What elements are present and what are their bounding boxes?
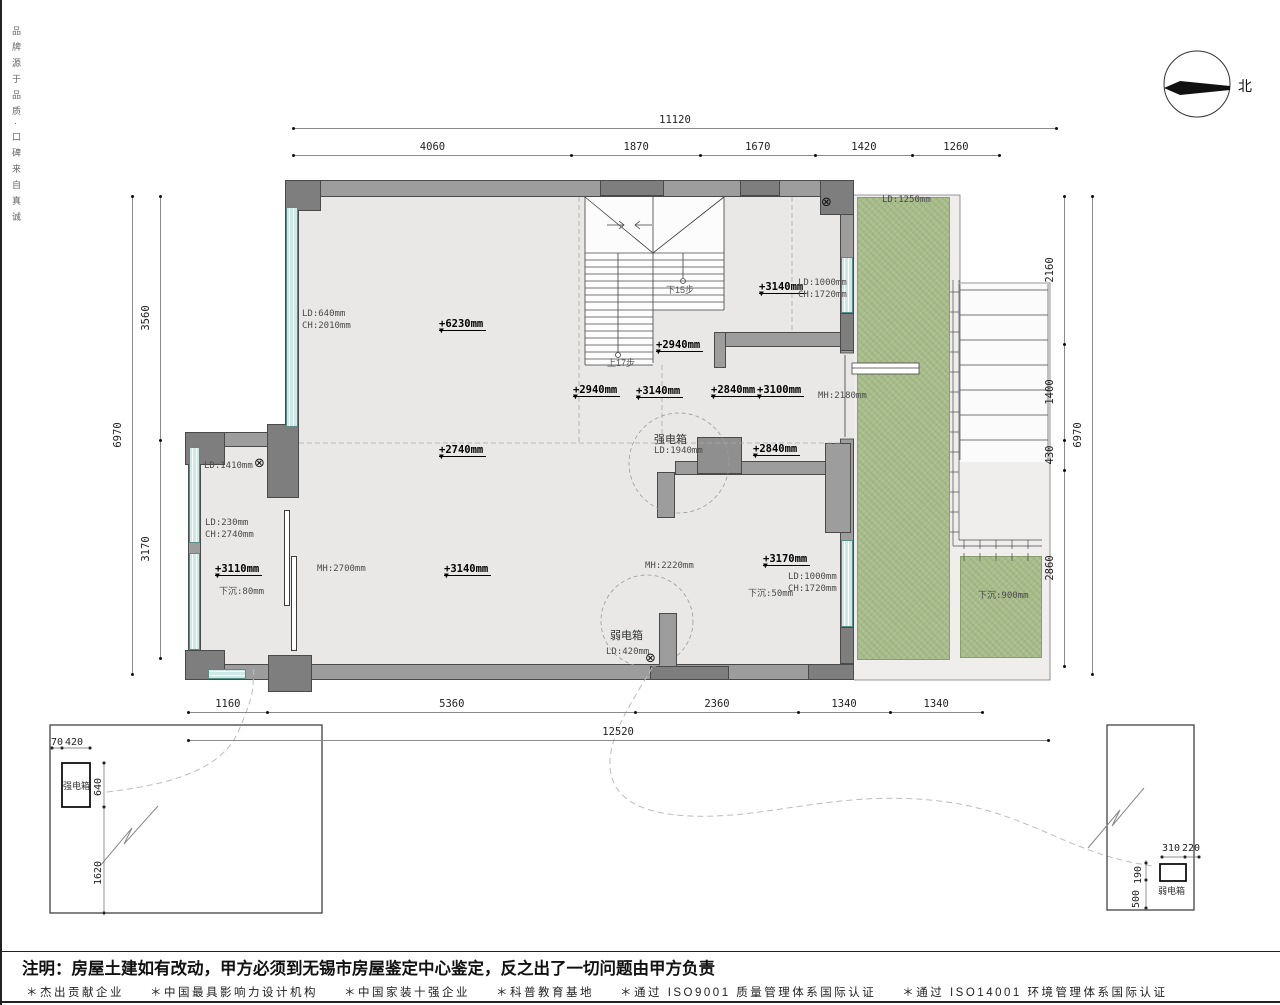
label-info: MH:2700mm [317, 564, 366, 574]
dim-dot [292, 127, 295, 130]
label-mark: ⊗ [645, 652, 656, 665]
dim-dot [131, 195, 134, 198]
dim-label: 1260 [943, 141, 968, 153]
dim-label: 1340 [923, 698, 948, 710]
label-info: 下沉:50mm [748, 586, 793, 599]
label-elev: +3170mm▼ [763, 553, 810, 566]
dim-line [1064, 196, 1065, 667]
label-info: LD:1000mm [788, 572, 837, 582]
label-dimtx: 70 [51, 737, 63, 748]
dim-label: 1670 [745, 141, 770, 153]
label-info: LD:230mm [205, 518, 248, 528]
label-elev: +2940mm▼ [573, 384, 620, 397]
label-info: CH:2740mm [205, 530, 254, 540]
label-mark: ⊗ [821, 196, 832, 209]
label-room-s: 强电箱 [63, 779, 90, 792]
label-elev: +2940mm▼ [656, 339, 703, 352]
dim-line [1092, 196, 1093, 675]
dim-line [160, 196, 161, 658]
dim-dot [814, 154, 817, 157]
dim-dot [1063, 439, 1066, 442]
label-dimtx: 310 [1162, 843, 1180, 854]
label-info: LD:420mm [606, 647, 649, 657]
label-info: 下沉:900mm [978, 588, 1029, 601]
label-info: CH:2010mm [302, 321, 351, 331]
dim-line [293, 128, 1057, 129]
dim-label: 4060 [420, 141, 445, 153]
dim-dot [797, 711, 800, 714]
label-info: LD:1940mm [654, 446, 703, 456]
dim-label: 5360 [439, 698, 464, 710]
dim-dot [159, 195, 162, 198]
dim-label: 6970 [1072, 423, 1084, 448]
label-room-s: 弱电箱 [1158, 884, 1185, 897]
dim-line [132, 196, 133, 675]
label-elev: +6230mm▼ [439, 318, 486, 331]
dim-dot [159, 439, 162, 442]
dim-dot [981, 711, 984, 714]
dim-label: 430 [1044, 446, 1056, 465]
label-info: CH:1720mm [798, 290, 847, 300]
dim-dot [187, 711, 190, 714]
label-elev: +2840mm▼ [711, 384, 758, 397]
label-mark: ⊗ [254, 457, 265, 470]
floorplan-sheet: 品牌源于品质·口碑来自真诚 北 [0, 0, 1280, 1005]
dim-dot [570, 154, 573, 157]
dim-dot [1063, 665, 1066, 668]
dim-dot [1063, 195, 1066, 198]
dim-label: 6970 [112, 423, 124, 448]
dim-label: 3170 [140, 537, 152, 562]
label-room: 强电箱 [654, 431, 687, 447]
dim-dot [1063, 469, 1066, 472]
label-stairlbl: 上17步 [607, 356, 635, 369]
dim-label: 11120 [659, 114, 691, 126]
dim-label: 12520 [602, 726, 634, 738]
labels-overlay: LD:640mmCH:2010mm+6230mm▼+3140mm▼LD:1000… [2, 0, 1280, 1005]
dim-label: 3560 [140, 306, 152, 331]
label-dimv: 640 [93, 778, 104, 796]
dim-dot [292, 154, 295, 157]
dim-dot [699, 154, 702, 157]
label-dimv: 1620 [93, 861, 104, 885]
dim-dot [1047, 739, 1050, 742]
dim-line [188, 740, 1048, 741]
dim-dot [911, 154, 914, 157]
label-dimtx: 220 [1182, 843, 1200, 854]
dim-dot [889, 711, 892, 714]
label-dimv: 500 [1131, 890, 1142, 908]
label-elev: +3140mm▼ [636, 385, 683, 398]
dim-label: 1400 [1044, 380, 1056, 405]
label-room: 弱电箱 [610, 627, 643, 643]
dim-line [293, 155, 999, 156]
label-elev: +3100mm▼ [757, 384, 804, 397]
label-info: LD:640mm [302, 309, 345, 319]
dim-dot [131, 673, 134, 676]
dim-label: 2160 [1044, 258, 1056, 283]
dim-label: 1160 [215, 698, 240, 710]
dim-label: 1340 [831, 698, 856, 710]
dim-dot [159, 657, 162, 660]
label-info: MH:2220mm [645, 561, 694, 571]
dim-label: 1420 [851, 141, 876, 153]
dim-dot [1091, 673, 1094, 676]
label-dimtx: 420 [65, 737, 83, 748]
dim-line [188, 712, 982, 713]
label-elev: +2740mm▼ [439, 444, 486, 457]
label-elev: +3140mm▼ [444, 563, 491, 576]
dim-dot [998, 154, 1001, 157]
dim-dot [1063, 343, 1066, 346]
dim-dot [634, 711, 637, 714]
dim-label: 2360 [704, 698, 729, 710]
dim-label: 2860 [1044, 556, 1056, 581]
dim-dot [1055, 127, 1058, 130]
label-info: LD:1410mm [204, 461, 253, 471]
dim-label: 1870 [624, 141, 649, 153]
label-info: LD:1000mm [798, 278, 847, 288]
dim-dot [266, 711, 269, 714]
label-info: MH:2180mm [818, 391, 867, 401]
label-info: 下沉:80mm [219, 584, 264, 597]
label-stairlbl: 下15步 [666, 283, 694, 296]
dim-dot [1091, 195, 1094, 198]
label-elev: +2840mm▼ [753, 443, 800, 456]
label-elev: +3110mm▼ [215, 563, 262, 576]
label-dimv: 190 [1133, 866, 1144, 884]
label-info: LD:1250mm [882, 195, 931, 205]
dim-dot [187, 739, 190, 742]
label-info: CH:1720mm [788, 584, 837, 594]
